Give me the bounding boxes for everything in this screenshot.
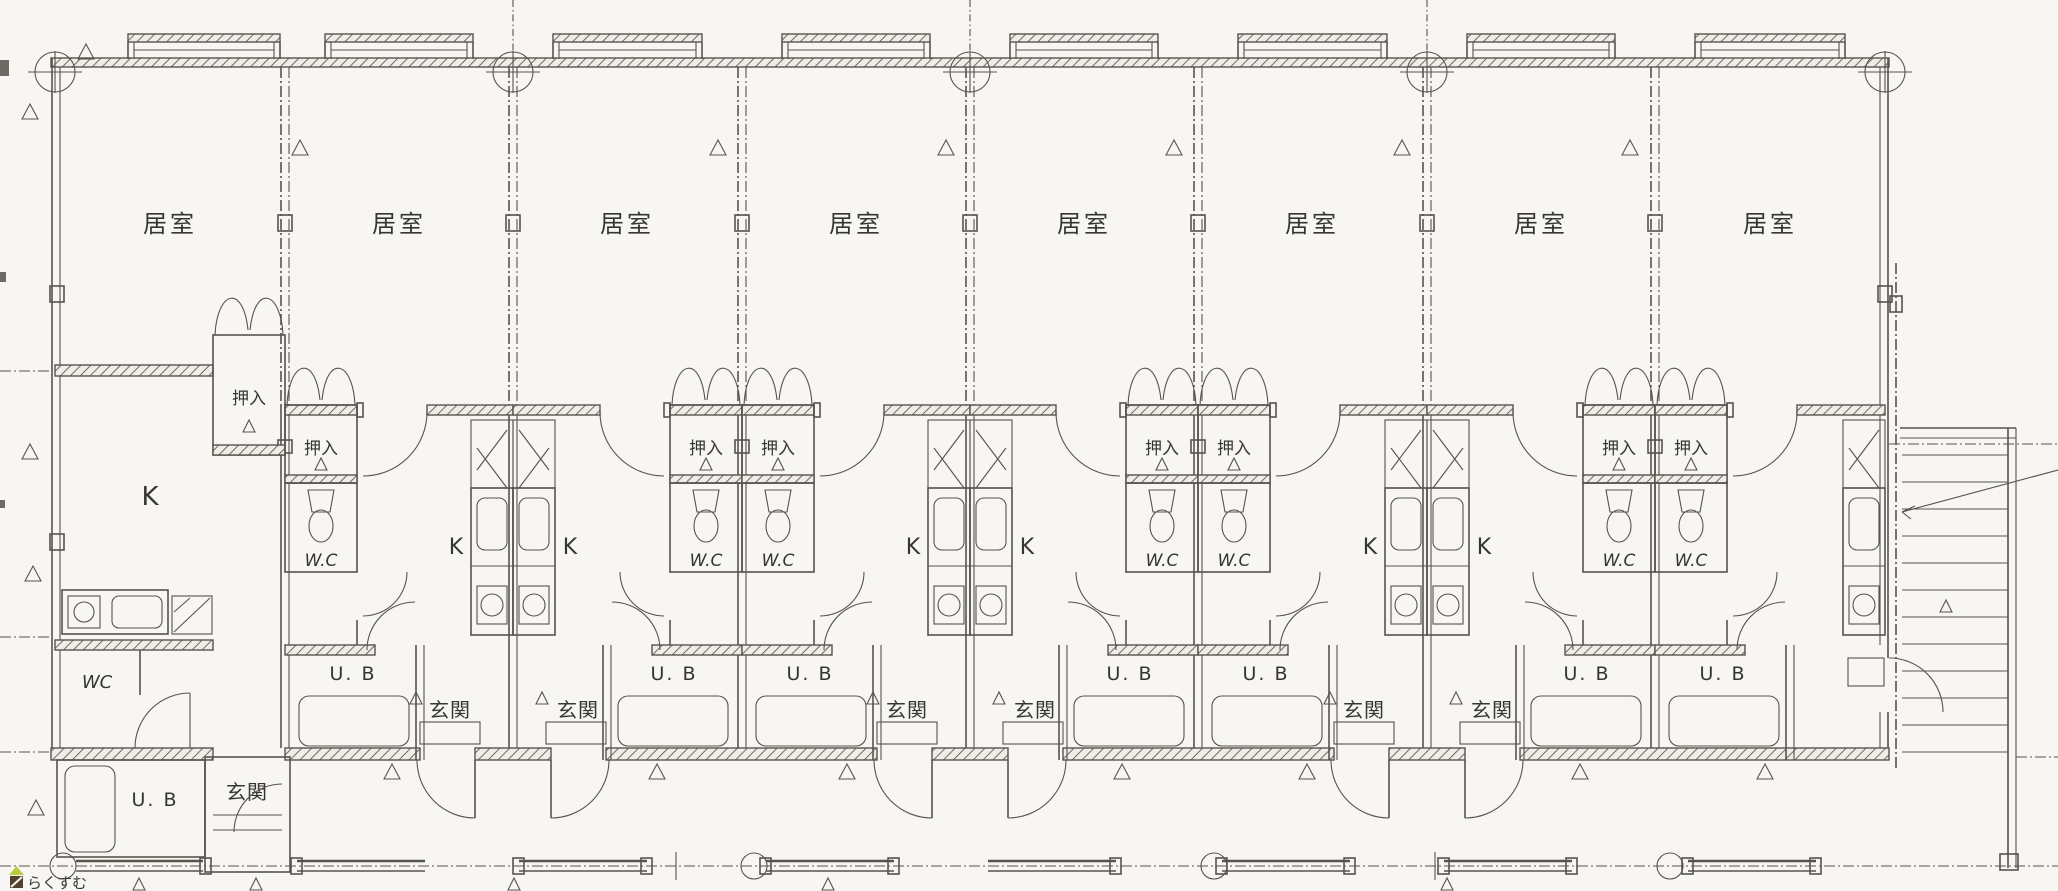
bath-label-u1: U. B — [131, 789, 178, 811]
closet-label: 押入 — [304, 439, 338, 459]
entrance-label: 玄関 — [429, 698, 471, 722]
entry-door-arc — [1465, 760, 1523, 818]
door-swing-arc — [1076, 572, 1120, 616]
room-label-living-3: 居室 — [600, 210, 654, 238]
door-swing-arc — [1525, 602, 1573, 650]
bath-label: U. B — [1563, 663, 1610, 685]
bathtub-icon — [1074, 696, 1184, 746]
entry-door-arc — [417, 760, 475, 818]
bay-window — [553, 34, 702, 59]
door-swing-arc — [1276, 572, 1320, 616]
room-label-living-2: 居室 — [372, 210, 426, 238]
bath-label: U. B — [786, 663, 833, 685]
toilet-label: W.C — [690, 551, 723, 571]
stove-icon — [68, 596, 100, 628]
toilet-label: W.C — [762, 551, 795, 571]
kitchen-counter — [1385, 420, 1427, 635]
bathtub-icon — [756, 696, 866, 746]
entrance-label: 玄関 — [1471, 698, 1513, 722]
door-swing-arc — [820, 572, 864, 616]
entry-step — [1460, 722, 1520, 744]
bathtub-icon — [1212, 696, 1322, 746]
closet-label: 押入 — [1145, 439, 1179, 459]
kitchen-label: K — [1477, 535, 1492, 560]
door-swing-arc — [1533, 572, 1577, 616]
stair-treads — [1902, 455, 2008, 752]
toilet-label: W.C — [1675, 551, 1708, 571]
entry-step — [1848, 658, 1884, 686]
bay-window — [128, 34, 280, 59]
entry-step — [1334, 722, 1394, 744]
door-swing-arc — [1280, 602, 1328, 650]
entrance-label-u1: 玄関 — [226, 780, 268, 804]
door-swing-arc — [363, 572, 407, 616]
closet-label: 押入 — [1674, 439, 1708, 459]
bath-label: U. B — [1242, 663, 1289, 685]
sink-icon — [112, 596, 162, 628]
floor-plan-drawing: 居室 居室 居室 居室 居室 居室 居室 居室 押入 K WC U. B 玄関 — [0, 0, 2058, 891]
bay-window — [1695, 34, 1845, 59]
toilet-label: W.C — [1603, 551, 1636, 571]
closet-label: 押入 — [1602, 439, 1636, 459]
bathtub-icon — [299, 696, 409, 746]
entry-step — [1003, 722, 1063, 744]
bathtub-icon — [65, 766, 115, 852]
kitchen-label-u1: K — [141, 482, 159, 512]
bath-label: U. B — [650, 663, 697, 685]
kitchen-label: K — [1363, 535, 1378, 560]
floor-plan-scan: 居室 居室 居室 居室 居室 居室 居室 居室 押入 K WC U. B 玄関 — [0, 0, 2058, 891]
room-label-living-6: 居室 — [1285, 210, 1339, 238]
entry-door-arc — [1331, 760, 1389, 818]
entrance-label: 玄関 — [1343, 698, 1385, 722]
toilet-label: W.C — [305, 551, 338, 571]
unit-1-annex: U. B 玄関 — [57, 757, 290, 872]
bath-label: U. B — [1106, 663, 1153, 685]
door-swing-arc — [1513, 412, 1577, 476]
entry-step — [420, 722, 480, 744]
bay-window — [325, 34, 473, 59]
kitchen-counter — [471, 420, 513, 635]
reference-lines-left — [0, 371, 51, 752]
sink-icon — [477, 498, 507, 550]
sink-icon — [1391, 498, 1421, 550]
room-label-living-8: 居室 — [1743, 210, 1797, 238]
entry-door-arc — [551, 760, 609, 818]
bathtub-icon — [618, 696, 728, 746]
door-swing-arc — [824, 602, 872, 650]
unit-8: 押入 W.C U. B — [1655, 368, 1943, 760]
door-swing-arc — [135, 693, 190, 748]
door-swing-arc — [1056, 412, 1120, 476]
toilet-label-u1: WC — [82, 672, 113, 693]
room-label-living-4: 居室 — [829, 210, 883, 238]
exterior-south-wall — [51, 748, 1889, 760]
door-swing-arc — [600, 412, 664, 476]
bath-label: U. B — [1699, 663, 1746, 685]
kitchen-counter-u1 — [62, 590, 212, 634]
entry-door-arc — [874, 760, 932, 818]
door-swing-arc — [1737, 602, 1785, 650]
closet-label: 押入 — [1217, 439, 1251, 459]
door-swing-arc — [1276, 412, 1340, 476]
kitchen-label: K — [906, 535, 921, 560]
entry-step — [546, 722, 606, 744]
door-swing-arc — [1733, 412, 1797, 476]
door-swing-arc — [820, 412, 884, 476]
ground-line-and-fence — [0, 852, 2058, 880]
bath-label: U. B — [329, 663, 376, 685]
staircase — [1889, 263, 2058, 870]
watermark-triangle-icon — [9, 866, 24, 875]
closet-label: 押入 — [689, 439, 723, 459]
bay-window — [1467, 34, 1615, 59]
bathtub-icon — [1669, 696, 1779, 746]
exterior-north-wall — [28, 0, 1912, 93]
bay-window — [1238, 34, 1387, 59]
entrance-label: 玄関 — [886, 698, 928, 722]
closet-label-u1: 押入 — [232, 389, 266, 409]
door-swing-arc — [1733, 572, 1777, 616]
kitchen-counter — [513, 420, 555, 635]
room-label-living-5: 居室 — [1057, 210, 1111, 238]
kitchen-label: K — [1020, 535, 1035, 560]
stair-direction-arrow — [1902, 470, 2058, 519]
door-swing-arc — [612, 602, 660, 650]
entry-door-arc — [1889, 658, 1943, 712]
kitchen-counter — [970, 420, 1012, 635]
entrance-label: 玄関 — [557, 698, 599, 722]
door-swing-arc — [367, 602, 415, 650]
room-label-living-1: 居室 — [143, 210, 197, 238]
sink-icon — [934, 498, 964, 550]
entrance-label: 玄関 — [1014, 698, 1056, 722]
door-swing-arc — [1068, 602, 1116, 650]
bathtub-icon — [1531, 696, 1641, 746]
toilet-label: W.C — [1146, 551, 1179, 571]
scan-artifacts — [0, 60, 9, 508]
kitchen-label: K — [563, 535, 578, 560]
sink-icon — [1433, 498, 1463, 550]
bay-window — [1010, 34, 1158, 59]
unit-1: 押入 K WC U. B 玄関 — [55, 298, 290, 872]
entry-step — [877, 722, 937, 744]
kitchen-label: K — [449, 535, 464, 560]
toilet-label: W.C — [1218, 551, 1251, 571]
closet-label: 押入 — [761, 439, 795, 459]
living-rooms: 居室 居室 居室 居室 居室 居室 居室 居室 — [78, 44, 1797, 238]
door-swing-arc — [620, 572, 664, 616]
room-label-living-7: 居室 — [1514, 210, 1568, 238]
kitchen-counter — [1843, 420, 1885, 635]
kitchen-counter — [928, 420, 970, 635]
sink-icon — [1849, 498, 1879, 550]
bay-window — [782, 34, 930, 59]
kitchen-counter — [1427, 420, 1469, 635]
door-swing-arc — [363, 412, 427, 476]
entry-door-arc — [1008, 760, 1066, 818]
sink-icon — [976, 498, 1006, 550]
watermark-text: らくすむ — [27, 874, 87, 891]
sink-icon — [519, 498, 549, 550]
